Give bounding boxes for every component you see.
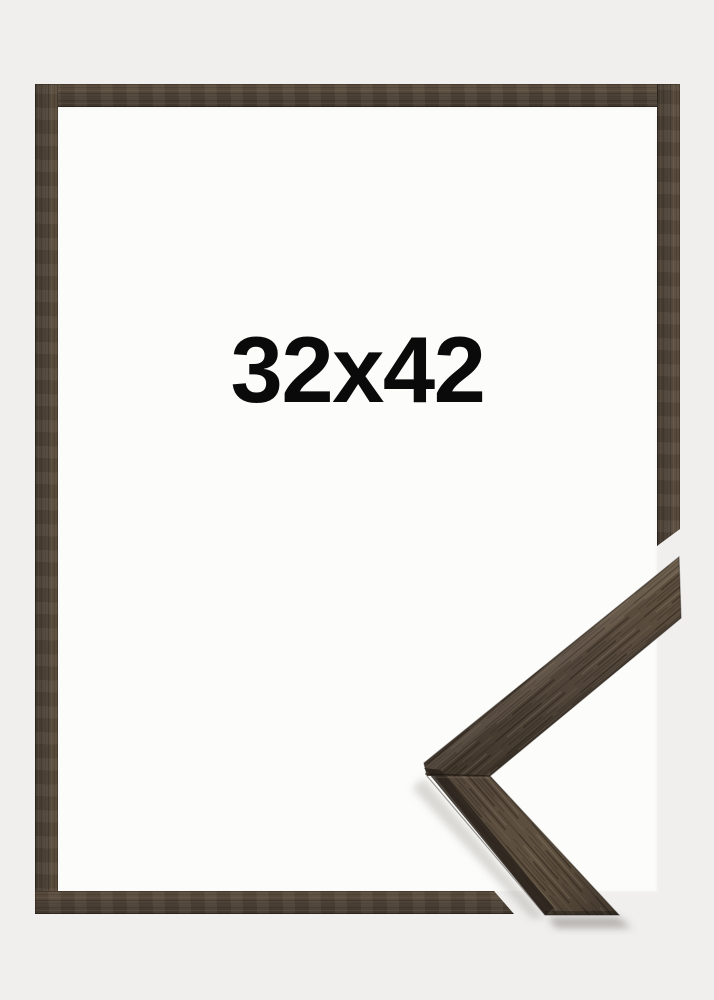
frame-left-bar [35, 84, 58, 914]
frame-opening [58, 107, 657, 891]
product-image-frame-32x42: 32x42 [0, 0, 714, 1000]
frame-bottom-bar [35, 891, 514, 914]
size-label: 32x42 [58, 322, 657, 418]
frame-right-bar [657, 84, 680, 546]
frame-top-bar [35, 84, 680, 107]
